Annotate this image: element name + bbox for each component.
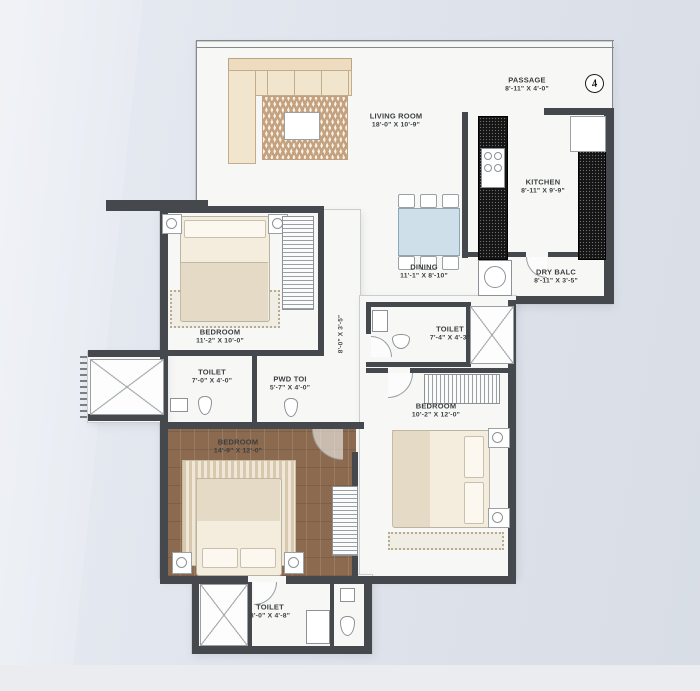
master-lamp-left [176, 557, 187, 568]
wall-toilet2-top [366, 302, 470, 307]
dining-chair-1 [398, 194, 415, 208]
left-balcony-hatch-marks [80, 352, 87, 418]
toilet1-label: TOILET 7'-0" X 4'-0" [192, 368, 232, 387]
toilet3-dims: 8'-0" X 4'-8" [247, 612, 293, 621]
hob-burner-3 [484, 164, 492, 172]
toilet1-sink [170, 398, 188, 412]
bedroom2-pillow-2 [464, 482, 484, 524]
wall-left-balcony-bottom [88, 414, 164, 421]
toilet2-dims: 7'-4" X 4'-3" [427, 334, 473, 343]
dry-balc-name: DRY BALC [534, 268, 578, 278]
bedroom1-wardrobe [282, 216, 314, 310]
bedroom1-label: BEDROOM 11'-2" X 10'-0" [196, 328, 244, 347]
wall-bottom-run-b [286, 576, 516, 584]
living-room-dims: 18'-0" X 10'-9" [370, 121, 423, 130]
wall-hall-vertical [318, 206, 324, 356]
dining-name: DINING [400, 263, 448, 273]
floor-plan-page: PASSAGE 8'-11" X 4'-0" 4 LIVING ROOM 18'… [0, 0, 700, 691]
shaft-right [470, 306, 514, 364]
top-right-boundary-line [612, 40, 613, 114]
hob-burner-4 [494, 164, 502, 172]
kitchen-counter-right [578, 150, 606, 260]
toilet3-name: TOILET [247, 603, 293, 613]
toilet3-label: TOILET 8'-0" X 4'-8" [247, 603, 293, 622]
unit-number: 4 [590, 77, 598, 90]
passage-label: PASSAGE 8'-11" X 4'-0" [505, 76, 549, 95]
bedroom2-name: BEDROOM [412, 402, 460, 412]
wall-bottom-left-vertical [192, 582, 199, 652]
master-blanket [196, 478, 280, 521]
kitchen-sink [570, 116, 606, 152]
bedroom2-dims: 10'-2" X 12'-0" [412, 411, 460, 420]
passage-name: PASSAGE [505, 76, 549, 86]
dining-chair-3 [442, 194, 459, 208]
bedroom1-pillow [184, 220, 266, 238]
hob-burner-1 [484, 152, 492, 160]
bedroom2-blanket [392, 430, 430, 527]
living-room-name: LIVING ROOM [370, 112, 423, 122]
toilet1-dims: 7'-0" X 4'-0" [192, 377, 232, 386]
background-bottom-band [0, 665, 700, 691]
wall-pwd-divider [252, 356, 257, 426]
dining-label: DINING 11'-1" X 8'-10" [400, 263, 448, 282]
wall-bottom-horizontal [192, 646, 372, 654]
wall-kitchen-left [462, 112, 468, 258]
master-pillow-1 [202, 548, 238, 568]
sofa-seat-left [228, 70, 256, 164]
toilet2-sink [372, 310, 388, 332]
bedroom1-blanket [180, 262, 268, 321]
pwd-toi-label: PWD TOI 5'-7" X 4'-0" [267, 375, 313, 394]
wall-master-top [160, 422, 364, 429]
kitchen-dims: 8'-11" X 9'-9" [521, 187, 565, 196]
dry-balc-dims: 8'-11" X 3'-5" [534, 277, 578, 286]
bedroom2-rug [388, 532, 504, 550]
shaft-left-balcony [90, 359, 164, 415]
bedroom2-lamp-bottom [492, 512, 503, 523]
shaft-bottom-left [200, 584, 248, 646]
bedroom2-label: BEDROOM 10'-2" X 12'-0" [412, 402, 460, 421]
bedroom1-name: BEDROOM [196, 328, 244, 338]
toilet2-name: TOILET [427, 325, 473, 335]
toilet3-sink [340, 588, 355, 602]
inner-passage-dims-vertical: 8'-0" X 3'-5" [338, 315, 345, 354]
wall-bottom-right-vertical [364, 576, 372, 654]
master-bedroom-label: BEDROOM 14'-9" X 12'-0" [214, 438, 262, 457]
master-bedroom-dims: 14'-9" X 12'-0" [214, 447, 262, 456]
dining-table [398, 208, 460, 256]
dining-chair-2 [420, 194, 437, 208]
master-lamp-right [288, 557, 299, 568]
background-diagonal-band [0, 0, 146, 691]
wall-toilet2-left [366, 302, 371, 334]
wall-toilet3-divider-right [330, 582, 334, 646]
wall-drybalc-bottom [516, 296, 614, 304]
pwd-toi-name: PWD TOI [267, 375, 313, 385]
wall-toilet2-bottom [366, 362, 470, 367]
bedroom2-pillow-1 [464, 436, 484, 478]
bedroom1-dims: 11'-2" X 10'-0" [196, 337, 244, 346]
bedroom1-lamp-left [166, 218, 177, 229]
toilet1-name: TOILET [192, 368, 232, 378]
master-side-shelf [332, 486, 358, 556]
coffee-table [284, 112, 320, 140]
dining-dims: 11'-1" X 8'-10" [400, 272, 448, 281]
living-room-label: LIVING ROOM 18'-0" X 10'-9" [370, 112, 423, 131]
wall-bedroom2-top-a [366, 368, 388, 373]
kitchen-counter-left [478, 116, 508, 260]
passage-dims: 8'-11" X 4'-0" [505, 85, 549, 94]
bedroom2-wardrobe [424, 374, 500, 404]
dry-balc-label: DRY BALC 8'-11" X 3'-5" [534, 268, 578, 287]
hob-burner-2 [494, 152, 502, 160]
bedroom2-lamp-top [492, 432, 503, 443]
toilet2-label: TOILET 7'-4" X 4'-3" [427, 325, 473, 344]
top-boundary-lines [196, 40, 614, 48]
sofa-seat-top [240, 70, 352, 96]
wall-left-balcony-top [88, 350, 164, 357]
washing-machine-drum [484, 266, 506, 288]
pwd-toi-dims: 5'-7" X 4'-0" [267, 384, 313, 393]
wall-bedroom2-top-b [410, 368, 516, 373]
wall-bottom-run-a [160, 576, 248, 584]
top-left-boundary-line [196, 40, 197, 212]
kitchen-name: KITCHEN [521, 178, 565, 188]
master-pillow-2 [240, 548, 276, 568]
toilet3-shower [306, 610, 330, 644]
wall-bedroom1-top [168, 206, 320, 213]
master-bedroom-name: BEDROOM [214, 438, 262, 448]
wall-toilets-top [160, 350, 324, 356]
kitchen-label: KITCHEN 8'-11" X 9'-9" [521, 178, 565, 197]
